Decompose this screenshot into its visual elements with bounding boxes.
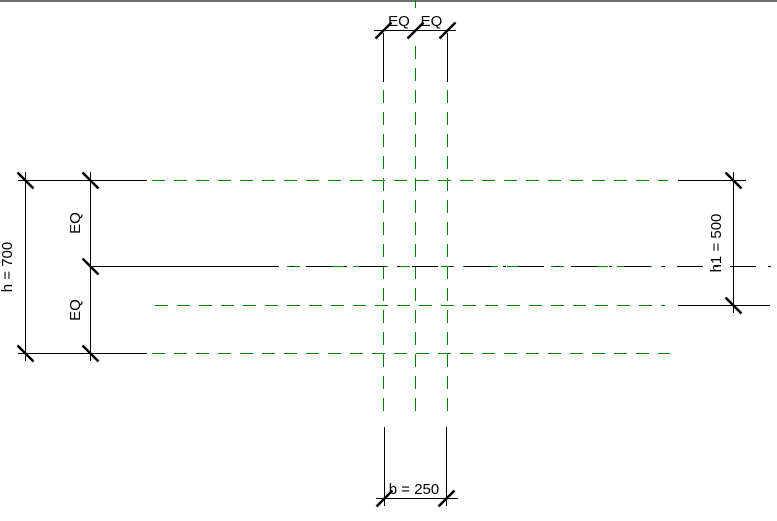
dim-label-left-eq-upper[interactable]: EQ xyxy=(67,212,84,234)
dim-label-width-bottom[interactable]: b = 250 xyxy=(389,481,439,498)
viewport-top-border xyxy=(0,0,777,2)
family-editor-view[interactable]: EQ EQ h = 700 EQ EQ h1 = 500 b = 250 xyxy=(0,0,777,521)
dim-label-height-right[interactable]: h1 = 500 xyxy=(708,214,725,273)
dimension-left-overall[interactable] xyxy=(18,172,34,362)
drawing-canvas[interactable]: EQ EQ h = 700 EQ EQ h1 = 500 b = 250 xyxy=(0,0,777,521)
dim-label-top-eq-left[interactable]: EQ xyxy=(388,13,410,30)
dim-label-left-eq-lower[interactable]: EQ xyxy=(67,299,84,321)
dim-label-top-eq-right[interactable]: EQ xyxy=(421,13,443,30)
dimension-labels: EQ EQ h = 700 EQ EQ h1 = 500 b = 250 xyxy=(0,13,725,498)
dim-label-height-overall[interactable]: h = 700 xyxy=(0,242,16,292)
reference-planes[interactable] xyxy=(152,0,670,420)
